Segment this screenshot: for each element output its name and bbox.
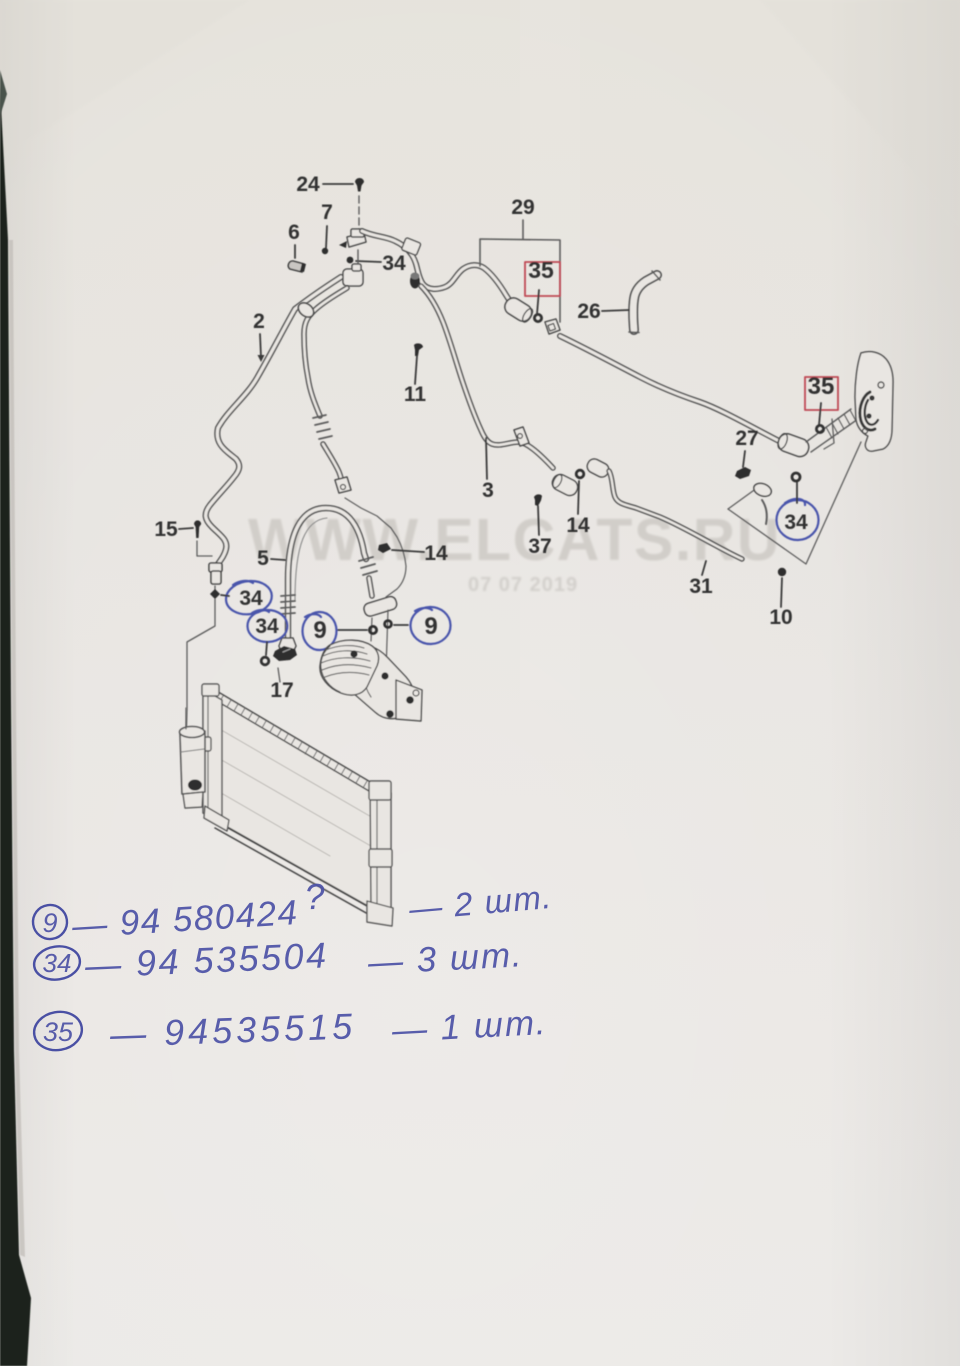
- svg-text:2: 2: [253, 310, 265, 333]
- svg-text:3: 3: [482, 479, 494, 502]
- svg-text:34: 34: [255, 615, 279, 638]
- svg-text:34: 34: [239, 587, 263, 610]
- svg-text:34: 34: [784, 511, 808, 534]
- svg-text:— 3 шт.: — 3 шт.: [366, 935, 524, 982]
- svg-text:26: 26: [577, 300, 600, 323]
- svg-text:07 07 2019: 07 07 2019: [468, 574, 578, 596]
- svg-text:9: 9: [424, 613, 437, 640]
- svg-text:37: 37: [528, 535, 551, 558]
- svg-text:29: 29: [511, 196, 534, 219]
- svg-text:31: 31: [689, 575, 713, 598]
- svg-text:?: ?: [304, 875, 326, 917]
- svg-text:27: 27: [735, 427, 758, 450]
- svg-text:5: 5: [257, 547, 269, 570]
- svg-text:14: 14: [424, 542, 448, 565]
- svg-text:6: 6: [288, 221, 300, 244]
- svg-text:35: 35: [808, 373, 835, 400]
- svg-text:24: 24: [296, 173, 320, 196]
- svg-text:15: 15: [154, 518, 178, 541]
- svg-text:34: 34: [43, 948, 72, 978]
- svg-text:34: 34: [382, 252, 406, 275]
- svg-text:— 1 шт.: — 1 шт.: [390, 1003, 548, 1050]
- svg-text:— 94535515: — 94535515: [108, 1005, 356, 1055]
- svg-text:10: 10: [769, 606, 792, 629]
- svg-text:7: 7: [321, 201, 333, 224]
- svg-text:11: 11: [404, 383, 427, 406]
- svg-text:35: 35: [43, 1017, 74, 1047]
- svg-text:17: 17: [270, 679, 293, 702]
- svg-text:9: 9: [42, 908, 57, 938]
- svg-text:35: 35: [528, 257, 554, 283]
- svg-text:14: 14: [566, 514, 590, 537]
- svg-text:9: 9: [313, 617, 326, 644]
